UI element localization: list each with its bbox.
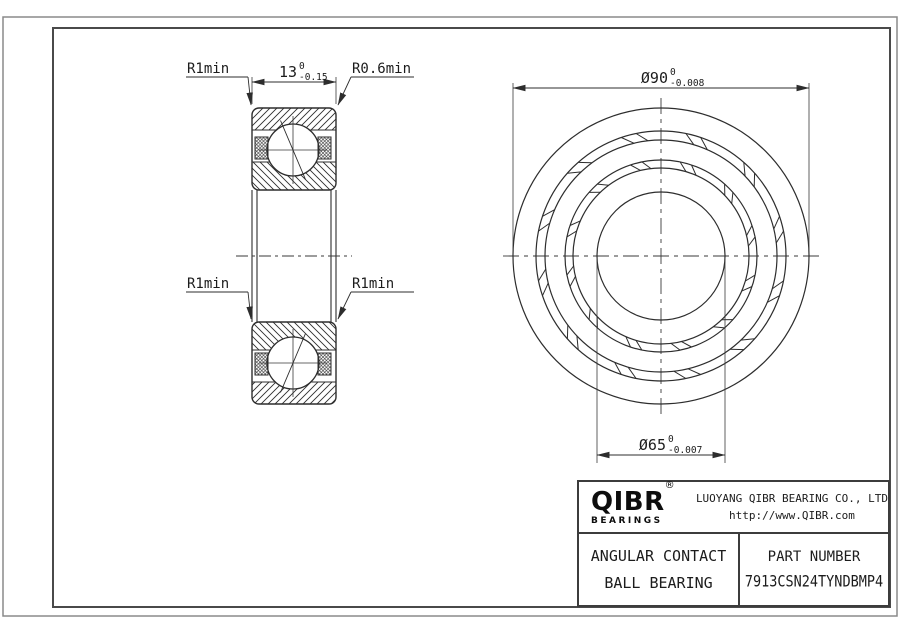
- cage-section: [255, 137, 268, 159]
- title-block-header-row: QIBR® BEARINGS LUOYANG QIBR BEARING CO.,…: [579, 482, 888, 534]
- bore-dim-tol-upper: 0: [668, 434, 674, 445]
- part-number-label: PART NUMBER: [768, 549, 861, 565]
- radius-label-mid-right: R1min: [352, 276, 394, 292]
- drawing-sheet: 13 0 -0.15 Ø90 0 -0.008 Ø65 0 -0.007 R1m…: [0, 0, 900, 636]
- od-dim-value: Ø90: [641, 69, 668, 87]
- brand-logo: QIBR® BEARINGS: [579, 489, 696, 526]
- product-type-cell: ANGULAR CONTACT BALL BEARING: [579, 534, 740, 605]
- radius-label-mid-left: R1min: [187, 276, 229, 292]
- brand-logo-subtitle: BEARINGS: [591, 517, 696, 526]
- width-dim-tol-lower: -0.15: [299, 72, 328, 83]
- radius-label-top-left: R1min: [187, 61, 229, 77]
- front-view: [503, 98, 821, 414]
- radius-label-top-right: R0.6min: [352, 61, 411, 77]
- bore-dim-tol-lower: -0.007: [668, 445, 702, 456]
- title-block: QIBR® BEARINGS LUOYANG QIBR BEARING CO.,…: [577, 480, 890, 607]
- registered-mark: ®: [665, 480, 676, 491]
- cage-section: [255, 353, 268, 375]
- part-number-value: 7913CSN24TYNDBMP4: [745, 573, 883, 591]
- product-type-line1: ANGULAR CONTACT: [591, 547, 726, 565]
- title-block-detail-row: ANGULAR CONTACT BALL BEARING PART NUMBER…: [579, 534, 888, 605]
- cage-section: [318, 353, 331, 375]
- dimension-width: 13 0 -0.15: [252, 61, 336, 104]
- od-dim-tol-lower: -0.008: [670, 78, 705, 89]
- product-type-line2: BALL BEARING: [604, 574, 712, 592]
- bore-dim-value: Ø65: [639, 436, 666, 454]
- company-website: http://www.QIBR.com: [729, 509, 855, 522]
- brand-logo-name: QIBR®: [591, 489, 696, 515]
- cage-section: [318, 137, 331, 159]
- width-dim-tol-upper: 0: [299, 61, 305, 72]
- od-dim-tol-upper: 0: [670, 67, 676, 78]
- company-name: LUOYANG QIBR BEARING CO., LTD: [696, 492, 888, 505]
- company-info: LUOYANG QIBR BEARING CO., LTD http://www…: [696, 492, 888, 522]
- width-dim-value: 13: [279, 63, 297, 81]
- cross-section-view: [236, 108, 352, 404]
- part-number-cell: PART NUMBER 7913CSN24TYNDBMP4: [740, 534, 888, 605]
